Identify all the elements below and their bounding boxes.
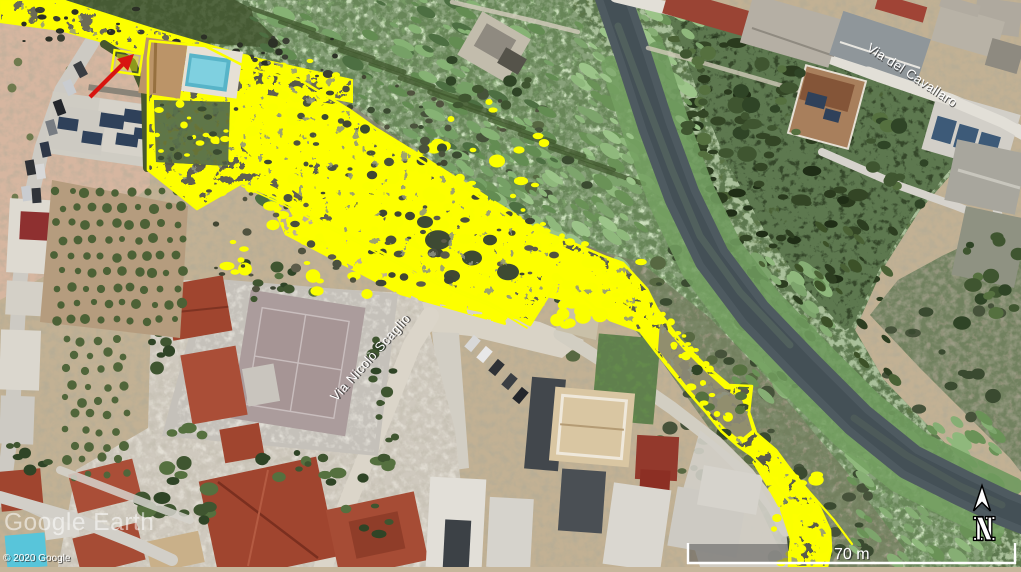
svg-text:Google Earth: Google Earth (4, 509, 154, 536)
svg-text:© 2020 Google: © 2020 Google (3, 553, 71, 564)
svg-text:70 m: 70 m (834, 546, 870, 563)
